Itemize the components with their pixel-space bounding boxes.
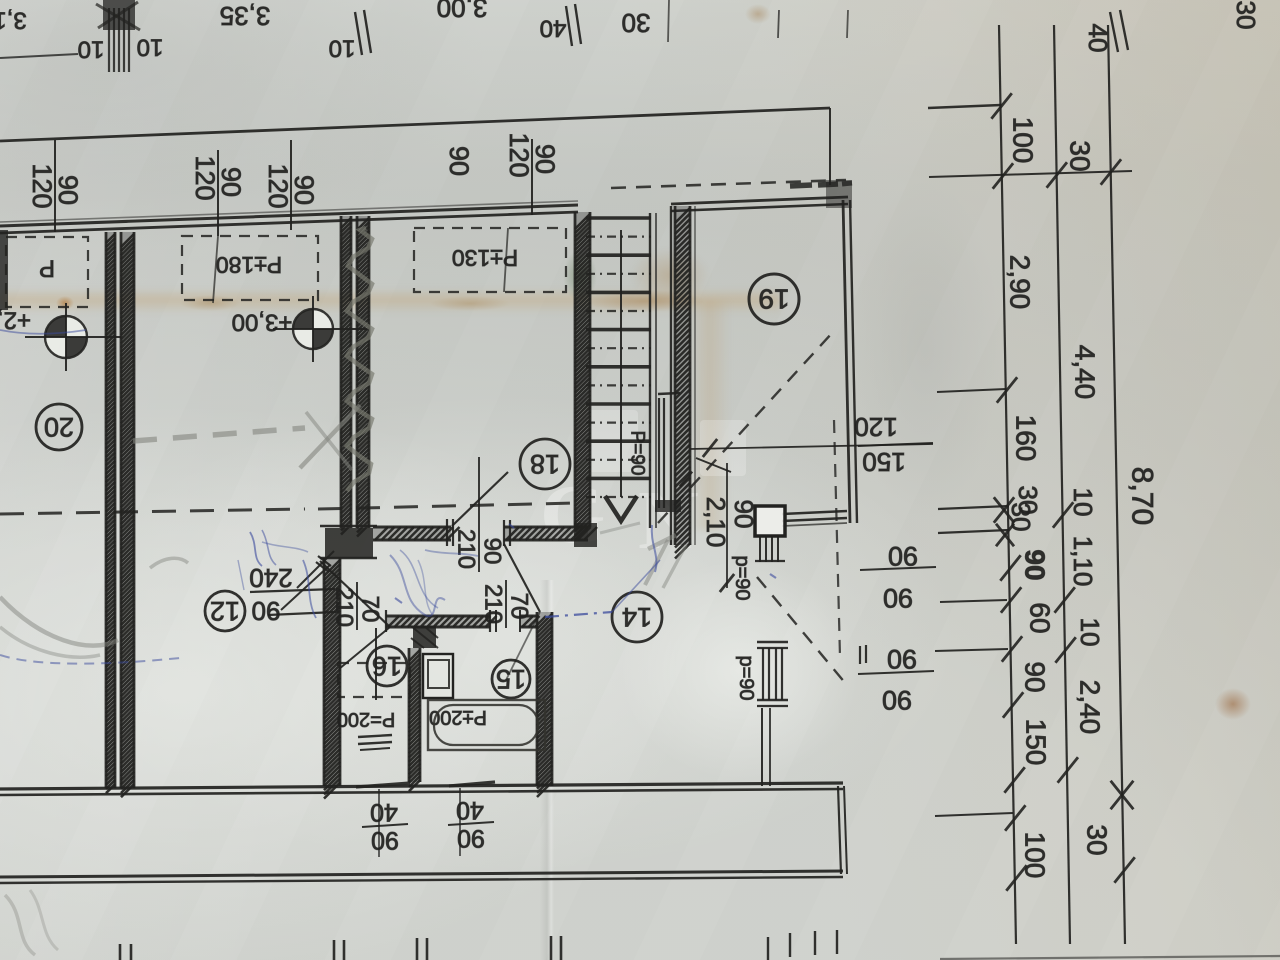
svg-text:p=90: p=90	[731, 555, 753, 600]
svg-text:240: 240	[249, 563, 292, 593]
svg-text:10: 10	[1068, 488, 1098, 517]
svg-text:P=200: P=200	[337, 708, 395, 730]
svg-text:90: 90	[530, 144, 560, 174]
svg-text:+2,: +2,	[0, 307, 31, 334]
svg-text:30: 30	[622, 8, 651, 38]
svg-text:3,00: 3,00	[437, 0, 488, 23]
svg-text:14: 14	[622, 602, 652, 632]
svg-text:90: 90	[444, 146, 474, 176]
svg-text:90: 90	[371, 826, 399, 854]
svg-text:10: 10	[1075, 618, 1105, 647]
svg-text:P±130: P±130	[452, 245, 518, 271]
svg-text:150: 150	[862, 447, 905, 477]
svg-text:18: 18	[530, 449, 560, 479]
svg-text:P±200: P±200	[429, 706, 487, 728]
svg-text:40: 40	[540, 15, 567, 42]
svg-text:210: 210	[453, 529, 480, 569]
svg-text:100: 100	[1008, 117, 1039, 164]
svg-text:30: 30	[1006, 503, 1036, 532]
svg-text:70: 70	[506, 593, 533, 620]
svg-text:30: 30	[1065, 140, 1096, 171]
svg-text:2,40: 2,40	[1075, 680, 1106, 735]
svg-text:30: 30	[1231, 1, 1261, 30]
svg-text:90: 90	[887, 644, 917, 674]
svg-text:p=90: p=90	[735, 655, 757, 700]
svg-text:90: 90	[252, 596, 281, 626]
svg-text:150: 150	[1021, 719, 1052, 766]
svg-text:90: 90	[216, 167, 246, 197]
svg-text:40: 40	[370, 798, 398, 826]
svg-text:90: 90	[888, 541, 918, 571]
svg-text:160: 160	[1011, 415, 1042, 462]
svg-text:P: P	[39, 255, 55, 282]
svg-text:120: 120	[504, 132, 534, 177]
svg-text:4,40: 4,40	[1070, 345, 1101, 400]
svg-text:P±180: P±180	[216, 252, 282, 278]
svg-text:90: 90	[1020, 549, 1051, 580]
svg-text:P=90: P=90	[627, 431, 648, 476]
svg-text:19: 19	[758, 284, 789, 315]
svg-text:+3,00: +3,00	[232, 309, 293, 336]
svg-text:2,90: 2,90	[1005, 255, 1036, 310]
svg-text:20: 20	[44, 412, 74, 442]
svg-text:3,35: 3,35	[220, 1, 271, 31]
svg-text:100: 100	[1020, 832, 1051, 879]
svg-text:120: 120	[27, 163, 57, 208]
svg-text:8,70: 8,70	[1126, 467, 1159, 525]
svg-text:90: 90	[1020, 661, 1051, 692]
svg-text:210: 210	[480, 584, 507, 624]
svg-text:1,10: 1,10	[1068, 536, 1098, 587]
svg-text:60: 60	[1025, 602, 1056, 633]
svg-text:90: 90	[457, 824, 485, 852]
svg-text:90: 90	[882, 685, 912, 715]
svg-text:120: 120	[854, 412, 897, 442]
svg-text:40: 40	[456, 796, 484, 824]
svg-text:120: 120	[263, 163, 293, 208]
svg-text:30: 30	[1082, 824, 1113, 855]
svg-text:90: 90	[53, 175, 83, 205]
svg-text:90: 90	[729, 500, 759, 529]
svg-text:90: 90	[289, 175, 319, 205]
svg-text:10: 10	[137, 34, 164, 61]
svg-text:10: 10	[329, 35, 356, 62]
svg-text:90: 90	[883, 583, 913, 613]
svg-text:12: 12	[210, 596, 240, 626]
svg-text:10: 10	[78, 36, 105, 63]
svg-text:90: 90	[479, 538, 506, 565]
svg-text:120: 120	[190, 155, 220, 200]
svg-text:3,1: 3,1	[0, 7, 27, 34]
svg-text:2,10: 2,10	[701, 497, 731, 548]
